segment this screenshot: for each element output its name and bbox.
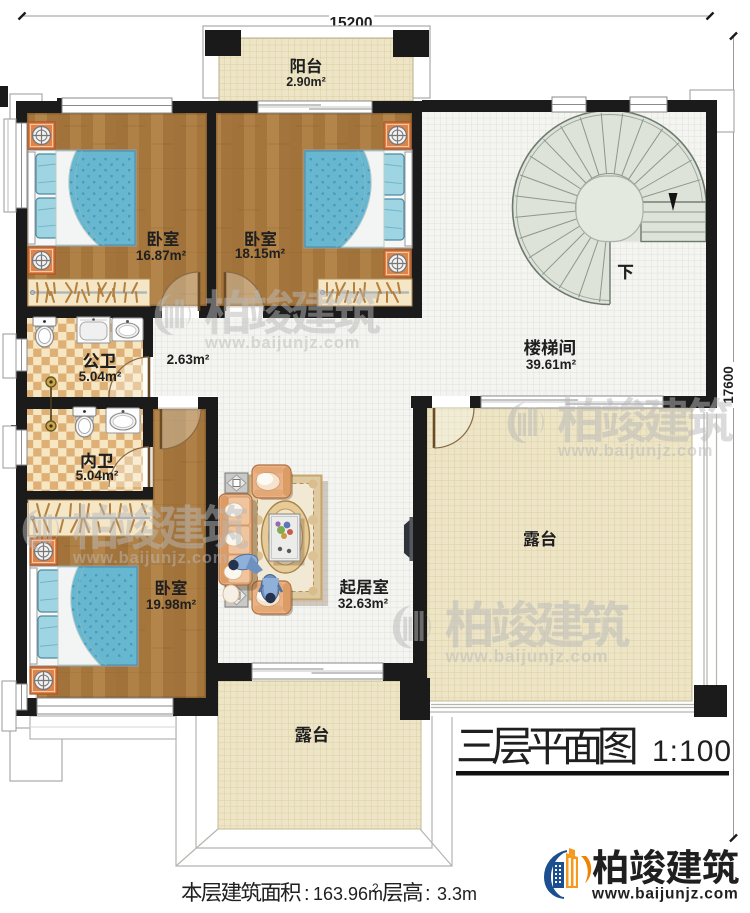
- svg-text:1:100: 1:100: [652, 735, 732, 768]
- svg-text::: :: [425, 883, 431, 905]
- svg-text:16.87m²: 16.87m²: [136, 248, 187, 263]
- svg-text:17600: 17600: [721, 366, 736, 404]
- svg-text:39.61m²: 39.61m²: [526, 357, 577, 372]
- svg-text:www.baijunjz.com: www.baijunjz.com: [557, 442, 713, 460]
- svg-text:32.63m²: 32.63m²: [338, 596, 389, 611]
- svg-text:3.3m: 3.3m: [437, 884, 477, 904]
- svg-text:www.baijunjz.com: www.baijunjz.com: [591, 886, 739, 903]
- svg-text:18.15m²: 18.15m²: [235, 246, 286, 261]
- svg-text:www.baijunjz.com: www.baijunjz.com: [72, 549, 228, 567]
- svg-text:2: 2: [372, 881, 379, 895]
- svg-text:19.98m²: 19.98m²: [146, 597, 197, 612]
- svg-text::: :: [304, 883, 310, 905]
- svg-text:2.63m²: 2.63m²: [167, 352, 210, 367]
- svg-text:2.90m²: 2.90m²: [286, 75, 326, 89]
- svg-text:www.baijunjz.com: www.baijunjz.com: [204, 334, 360, 352]
- svg-text:www.baijunjz.com: www.baijunjz.com: [445, 646, 609, 666]
- svg-text:5.04m²: 5.04m²: [76, 468, 119, 483]
- svg-text:5.04m²: 5.04m²: [79, 369, 122, 384]
